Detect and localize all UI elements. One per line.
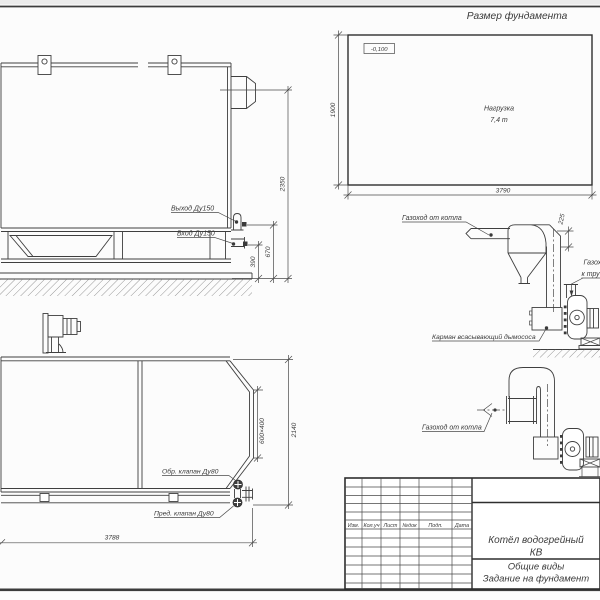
flue-from-boiler-label: Газоход от котла bbox=[402, 214, 462, 222]
flue-gas-diagram-lower: Газоход от котла bbox=[422, 368, 600, 478]
foundation-plan: Размер фундамента -0,100 Нагрузка 7,4 т … bbox=[330, 10, 597, 200]
flue-gas-diagram-upper: Газоход от котла 225 bbox=[402, 213, 600, 358]
flue-from-boiler-label-lower: Газоход от котла bbox=[422, 424, 482, 432]
cyclone bbox=[508, 225, 550, 284]
flue-from-boiler-callout-lower: Газоход от котла bbox=[422, 413, 492, 432]
fan-ground-hatch bbox=[533, 350, 600, 358]
product-name-line2: КВ bbox=[530, 548, 543, 559]
foundation-outline bbox=[348, 35, 592, 185]
doc-type-line2: Задание на фундамент bbox=[483, 574, 589, 585]
safety-valve bbox=[233, 498, 242, 507]
dim-inlet-height: 390 bbox=[248, 241, 263, 283]
header-koluch: Кол.уч bbox=[363, 523, 379, 529]
dim-length: 3788 bbox=[0, 508, 257, 547]
header-podp: Подп. bbox=[428, 523, 442, 529]
flue-from-boiler-callout: Газоход от котла bbox=[402, 214, 493, 237]
title-block: Изм. Кол.уч Лист №док Подп. Дата Котёл в… bbox=[345, 478, 600, 589]
safety-valve-label: Пред. клапан Ду80 bbox=[154, 510, 214, 518]
dim-3788: 3788 bbox=[105, 535, 120, 542]
dim-flue-opening: 600×400 bbox=[254, 386, 266, 462]
boiler-general-view-drawing: 2350 670 390 Выход Ду150 Вход Ду150 bbox=[0, 0, 600, 600]
dim-foundation-width: 3790 bbox=[344, 185, 597, 200]
horizontal-duct bbox=[507, 396, 537, 424]
flange-bolts bbox=[564, 306, 567, 335]
elevation-value: -0,100 bbox=[371, 47, 388, 53]
header-izm: Изм. bbox=[348, 523, 360, 529]
dim-3790: 3790 bbox=[496, 187, 511, 194]
header-ndok: №док bbox=[402, 523, 417, 529]
foundation-title: Размер фундамента bbox=[467, 10, 568, 22]
dim-670: 670 bbox=[265, 246, 272, 257]
dim-225: 225 bbox=[557, 213, 566, 226]
safety-valve-callout: Пред. клапан Ду80 bbox=[154, 506, 234, 518]
check-valve-callout: Обр. клапан Ду80 bbox=[162, 468, 236, 481]
check-valve bbox=[233, 480, 242, 489]
suction-pocket-callout: Карман всасывающий дымососа bbox=[432, 326, 548, 341]
header-data: Дата bbox=[454, 523, 469, 529]
inlet-duct bbox=[466, 229, 510, 239]
check-valve-label: Обр. клапан Ду80 bbox=[162, 468, 219, 476]
load-note: Нагрузка 7,4 т bbox=[484, 106, 514, 125]
fan-motor bbox=[587, 309, 599, 329]
smoke-exhauster-fan-lower bbox=[563, 429, 600, 478]
boiler-side-view: 2350 670 390 Выход Ду150 Вход Ду150 bbox=[0, 56, 292, 297]
dim-1900: 1900 bbox=[330, 102, 337, 117]
doc-type-line1: Общие виды bbox=[508, 562, 565, 573]
ground-hatch bbox=[0, 273, 252, 296]
load-line1: Нагрузка bbox=[484, 106, 514, 113]
elevation-mark: -0,100 bbox=[364, 44, 395, 54]
dim-foundation-height: 1900 bbox=[330, 31, 348, 190]
flue-outlet-collar bbox=[231, 77, 256, 109]
flue-to-stack-callout: Газоход к трубе bbox=[570, 259, 600, 297]
dim-duct-offset: 225 bbox=[557, 213, 574, 252]
flue-to-stack-label-1: Газоход bbox=[584, 259, 600, 267]
inlet-label: Вход Ду150 bbox=[177, 230, 215, 238]
header-list: Лист bbox=[383, 523, 398, 529]
outlet-label: Выход Ду150 bbox=[171, 205, 214, 213]
fan-inlet-transition bbox=[534, 437, 559, 459]
load-line2: 7,4 т bbox=[490, 117, 508, 124]
gooseneck-elbow bbox=[509, 368, 555, 447]
fan-motor-lower bbox=[586, 437, 598, 457]
dim-600x400: 600×400 bbox=[259, 418, 266, 444]
drawing-sheet: 2350 670 390 Выход Ду150 Вход Ду150 bbox=[0, 0, 600, 600]
mounted-equipment bbox=[43, 314, 81, 354]
rear-chamfer bbox=[226, 361, 254, 489]
dim-2140: 2140 bbox=[291, 422, 298, 438]
flow-axis bbox=[477, 404, 507, 417]
dim-390: 390 bbox=[250, 256, 257, 267]
outlet-callout: Выход Ду150 bbox=[171, 205, 238, 224]
vertical-flue-duct bbox=[547, 225, 561, 312]
lifting-lug bbox=[38, 56, 181, 75]
outlet-branch bbox=[231, 214, 247, 231]
suction-pocket-label: Карман всасывающий дымососа bbox=[432, 333, 536, 341]
product-name-line1: Котёл водогрейный bbox=[488, 535, 584, 546]
dim-2350: 2350 bbox=[280, 176, 287, 192]
boiler-plan-view: 600×400 2140 3788 Обр. клапан Ду80 Пред.… bbox=[0, 314, 298, 548]
smoke-exhauster-fan bbox=[564, 285, 600, 350]
flue-to-stack-label-2: к трубе bbox=[582, 270, 600, 278]
